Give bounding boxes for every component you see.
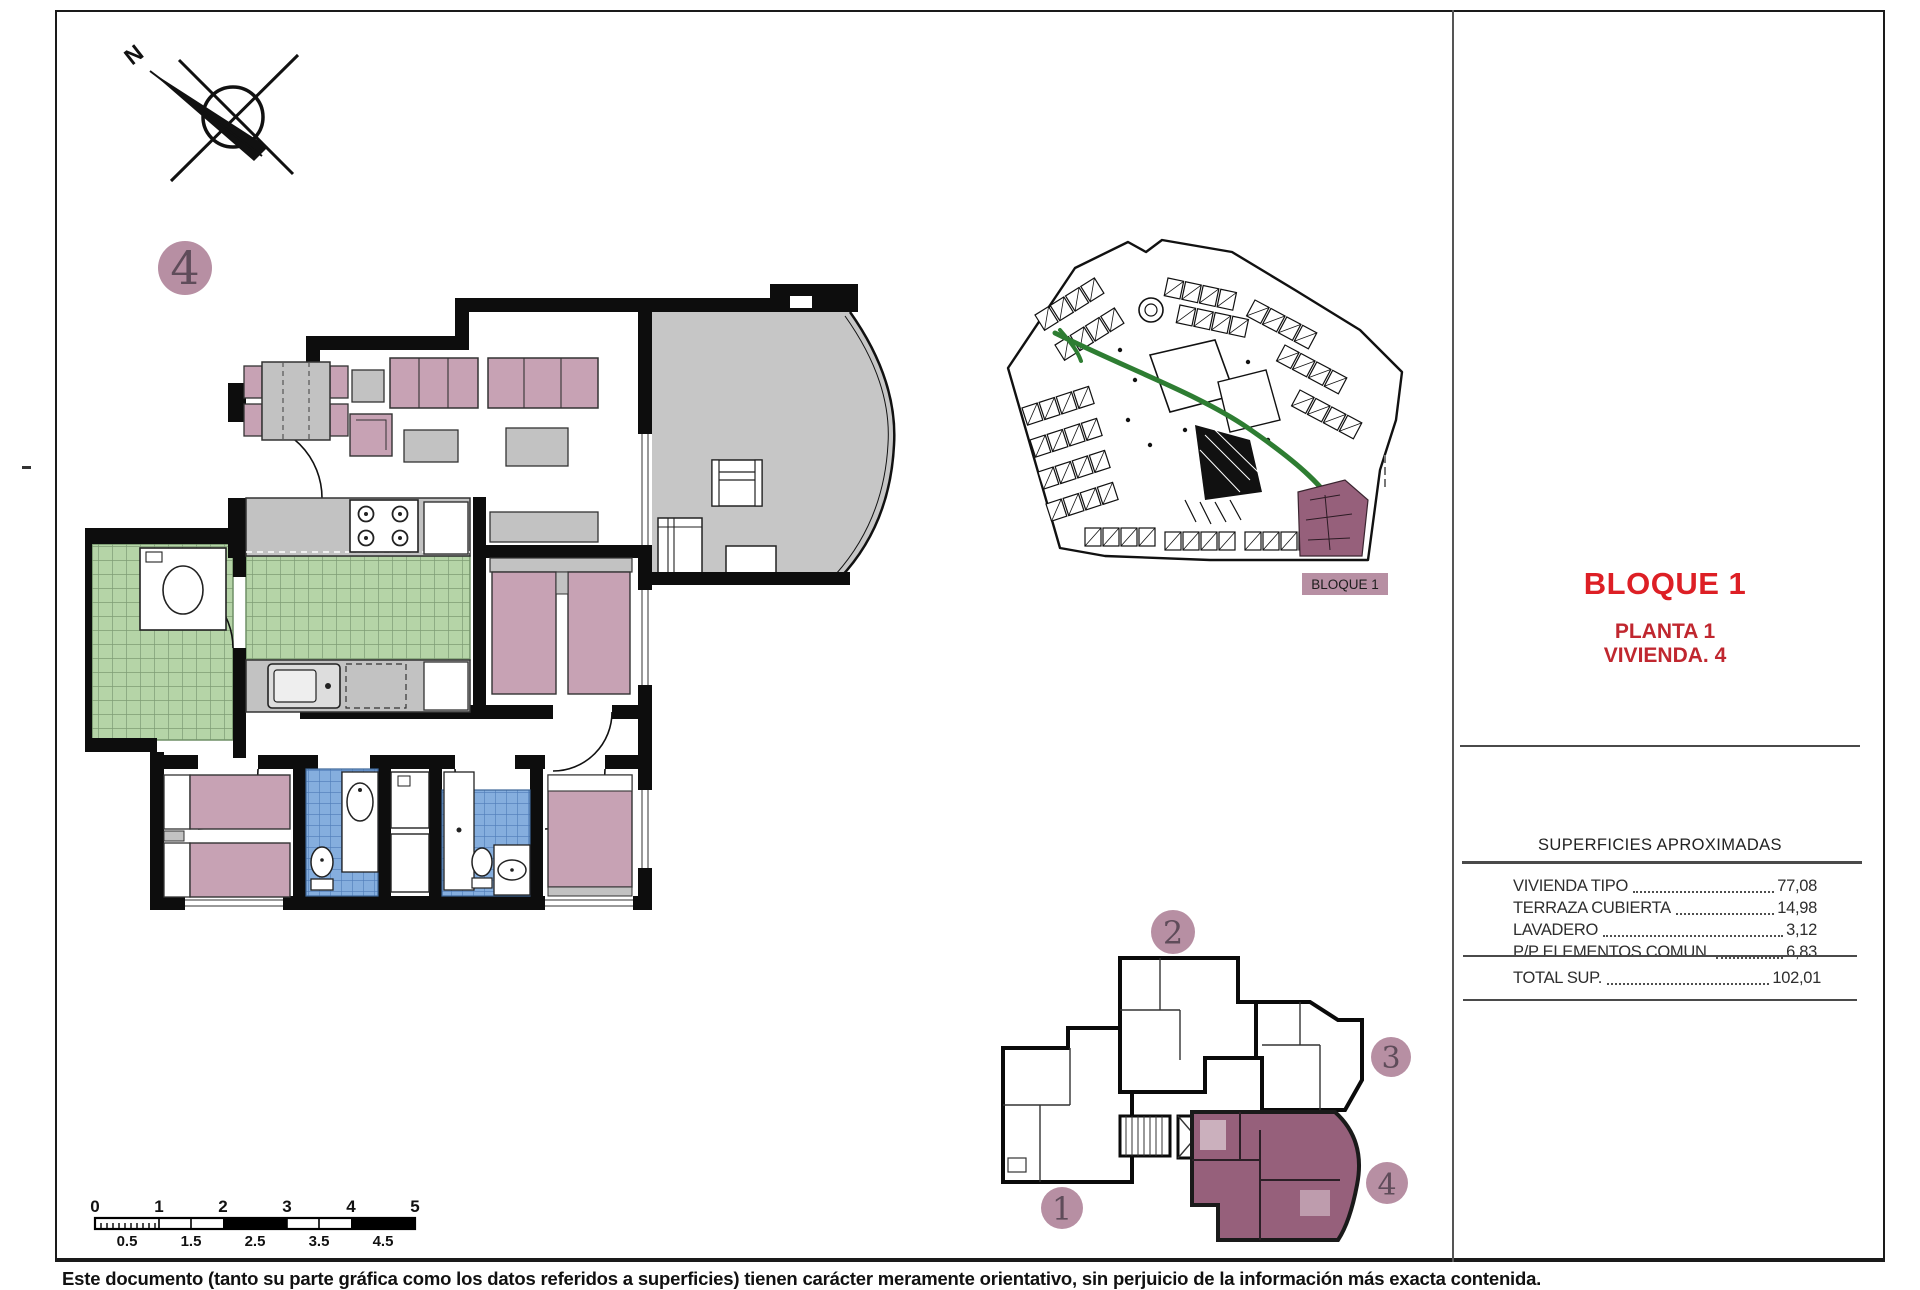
terrace (652, 312, 894, 578)
table-row: VIVIENDA TIPO 77,08 (1513, 874, 1817, 896)
block-apartment-2 (1120, 958, 1256, 1092)
terrace-table (712, 460, 762, 506)
scale-1: 1 (154, 1197, 163, 1216)
table-header-rule (1462, 861, 1862, 864)
row-value: 77,08 (1777, 877, 1817, 896)
north-label: N (119, 39, 148, 70)
kitchen-sink (268, 664, 340, 708)
block-apartment-4-highlight (1192, 1112, 1359, 1240)
scale-0-5: 0.5 (117, 1233, 138, 1250)
title-block: BLOQUE 1 PLANTA 1 VIVIENDA. 4 (1495, 566, 1835, 668)
badge-3: 3 (1381, 1041, 1400, 1076)
stove (350, 500, 418, 552)
toilet-icon (311, 847, 333, 890)
north-compass-icon: N (119, 39, 298, 181)
page-title: BLOQUE 1 (1495, 566, 1835, 602)
block-plan: 1 2 3 4 (1003, 910, 1411, 1240)
wall-notch (790, 296, 812, 308)
row-value: 3,12 (1786, 921, 1817, 940)
dining-set (244, 362, 348, 440)
row-label: TERRAZA CUBIERTA (1513, 899, 1671, 918)
leader-dots (1716, 957, 1783, 959)
leader-dots (1676, 913, 1774, 915)
toilet-icon-2 (472, 848, 492, 888)
site-plan-label: BLOQUE 1 (1311, 577, 1379, 592)
areas-table: VIVIENDA TIPO 77,08 TERRAZA CUBIERTA 14,… (1513, 874, 1817, 962)
unit-badge-number: 4 (170, 241, 199, 295)
badge-2: 2 (1163, 914, 1183, 952)
leader-dots (1607, 983, 1769, 985)
bathroom-1 (306, 769, 378, 896)
block-apartment-3 (1256, 1002, 1362, 1110)
bedroom-2-beds (164, 775, 290, 897)
scale-0: 0 (90, 1197, 99, 1216)
table-row: LAVADERO 3,12 (1513, 918, 1817, 940)
scale-3-5: 3.5 (309, 1233, 330, 1250)
unit-badge: 4 (158, 241, 212, 295)
terrace-lounger (658, 518, 702, 576)
site-plan: BLOQUE 1 (1008, 240, 1402, 595)
scale-2: 2 (218, 1197, 227, 1216)
shaft-cabinets (391, 772, 429, 892)
row-value: 14,98 (1777, 899, 1817, 918)
laundry (140, 548, 226, 630)
scale-1-5: 1.5 (181, 1233, 202, 1250)
row-label: LAVADERO (1513, 921, 1598, 940)
panel-rule-top (1460, 745, 1860, 747)
site-plan-label-chip: BLOQUE 1 (1302, 573, 1388, 595)
floor-subtitle: PLANTA 1 (1495, 620, 1835, 644)
disclaimer-text: Este documento (tanto su parte gráfica c… (62, 1268, 1442, 1290)
site-highlight-bloque1 (1298, 480, 1368, 556)
scale-2-5: 2.5 (245, 1233, 266, 1250)
total-value: 102,01 (1772, 969, 1821, 988)
table-mid-rule (1463, 955, 1857, 957)
floor-plan (85, 284, 894, 910)
bathroom-2 (442, 772, 530, 896)
street-label (1384, 455, 1386, 487)
scale-5: 5 (410, 1197, 419, 1216)
row-label: P/P ELEMENTOS COMUN. (1513, 943, 1711, 962)
table-bottom-rule (1463, 999, 1857, 1001)
areas-table-header: SUPERFICIES APROXIMADAS (1460, 836, 1860, 855)
badge-4: 4 (1377, 1168, 1396, 1203)
table-row: TERRAZA CUBIERTA 14,98 (1513, 896, 1817, 918)
total-label: TOTAL SUP. (1513, 969, 1602, 988)
terrace-side-table (726, 546, 776, 576)
scale-4: 4 (346, 1197, 356, 1216)
row-label: VIVIENDA TIPO (1513, 877, 1628, 896)
unit-subtitle: VIVIENDA. 4 (1495, 644, 1835, 668)
scale-3: 3 (282, 1197, 291, 1216)
scale-4-5: 4.5 (373, 1233, 394, 1250)
leader-dots (1633, 891, 1774, 893)
row-value: 6,83 (1786, 943, 1817, 962)
table-row: P/P ELEMENTOS COMUN. 6,83 (1513, 940, 1817, 962)
scale-bar: 0 1 2 3 4 5 0.5 1.5 2.5 3.5 4.5 (90, 1197, 419, 1250)
badge-1: 1 (1052, 1190, 1072, 1228)
kitchen-floor (246, 556, 470, 660)
table-total-row: TOTAL SUP. 102,01 (1513, 966, 1821, 988)
bedroom-1-bed (490, 558, 632, 694)
leader-dots (1603, 935, 1783, 937)
bedroom-3-bed (548, 775, 632, 896)
